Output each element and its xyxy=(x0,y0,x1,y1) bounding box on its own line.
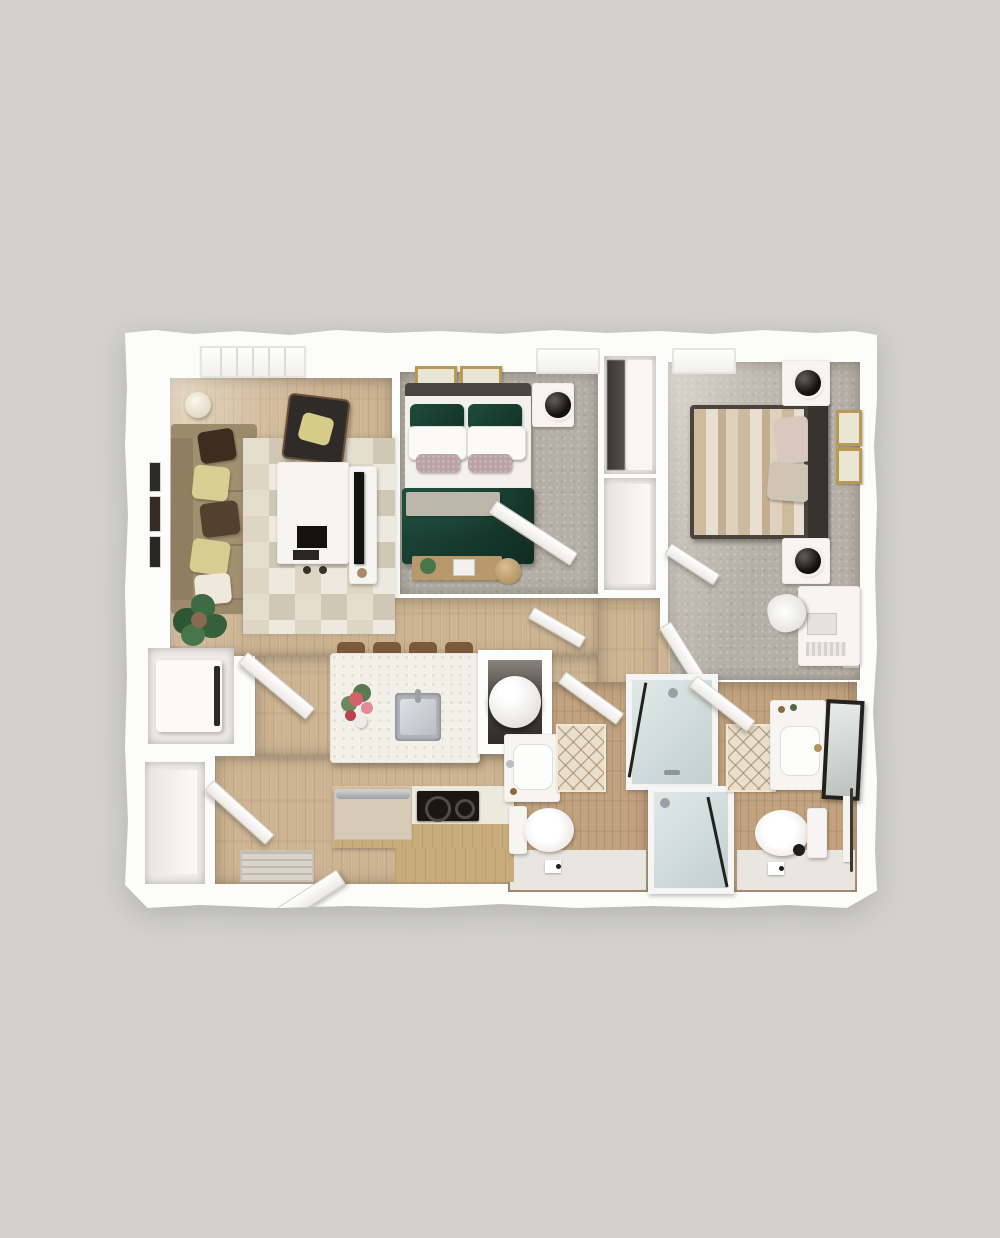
plant-pot xyxy=(191,612,207,628)
island-sink xyxy=(395,693,441,741)
flower-vase xyxy=(355,716,367,728)
bedroom-1-lamp xyxy=(545,392,571,418)
bathroom-2-shower xyxy=(648,786,734,894)
bedroom-2-pillow-beige xyxy=(766,461,811,503)
bench-book xyxy=(454,560,474,575)
coffee-table-book xyxy=(297,526,327,548)
bathroom-2-bottle-2 xyxy=(790,704,797,711)
bedroom-1-pillow-accent-2 xyxy=(468,454,512,472)
desk-laptop xyxy=(808,614,836,634)
bench-plant xyxy=(420,558,436,574)
burner-small xyxy=(455,799,475,819)
bedroom-2-art-2 xyxy=(836,448,862,484)
bathroom-1-toilet-bowl xyxy=(524,808,574,852)
bathroom-2-mirror xyxy=(821,699,864,801)
accent-chair-pillow xyxy=(297,411,335,446)
island-sink-basin xyxy=(400,699,436,735)
bathroom-2-sink xyxy=(780,726,820,776)
bathroom-2-towel-bar xyxy=(843,788,853,872)
bedroom-1-bed xyxy=(402,366,534,566)
cooktop xyxy=(417,791,479,821)
bathroom-2-flush-valve xyxy=(793,844,805,856)
island-faucet xyxy=(415,689,421,703)
flower-pink-2 xyxy=(361,702,373,714)
bathroom-1-tp-holder xyxy=(545,860,561,873)
bathroom-2-shelf xyxy=(770,680,848,700)
bathroom-1-mat xyxy=(556,724,606,792)
laundry-closet xyxy=(148,648,234,744)
bedroom-1-tray xyxy=(495,558,521,584)
shower-1-head xyxy=(668,688,678,698)
bathroom-2-vanity xyxy=(770,700,826,790)
bathroom-2-toilet-tank xyxy=(807,808,827,858)
bathroom-1-sink xyxy=(513,744,553,790)
shower-2-head xyxy=(660,798,670,808)
bathroom-2-mat xyxy=(726,724,776,792)
bathroom-1-faucet xyxy=(506,760,514,768)
washer-door-edge xyxy=(214,666,220,726)
floor-plan-paper-shadow xyxy=(125,330,877,908)
tv-console xyxy=(349,466,377,584)
wall-art-strip-2 xyxy=(150,497,160,531)
washer-dryer xyxy=(156,660,222,732)
bedroom-1-pillow-accent-1 xyxy=(416,454,460,472)
floor-plan-canvas xyxy=(0,0,1000,1238)
pillow-yellow-2 xyxy=(189,538,231,577)
tv-console-knob xyxy=(357,568,367,578)
closet-shelf-2 xyxy=(610,484,650,584)
towel-rod xyxy=(850,788,853,872)
floor-plant xyxy=(167,590,231,648)
bedroom-1-folded-blanket xyxy=(406,492,500,516)
bathroom-2-faucet xyxy=(814,744,822,752)
coffee-table-cup-2 xyxy=(319,566,327,574)
water-heater-tank xyxy=(489,676,541,728)
wall-art-strip-1 xyxy=(150,463,160,491)
shower-1-glass-frame xyxy=(628,682,648,777)
oven xyxy=(334,788,412,840)
island-flowers xyxy=(339,682,383,730)
bedroom-1-bench xyxy=(412,556,502,580)
bathroom-2-tp-holder xyxy=(768,862,784,875)
bedroom-2-bed xyxy=(690,395,840,555)
linen-closet xyxy=(145,762,205,884)
bathroom-1-vanity xyxy=(504,734,560,802)
bathroom-1-tile-apron xyxy=(510,850,646,890)
living-window-mullions xyxy=(220,348,286,376)
coffee-table-tablet xyxy=(293,550,319,560)
floor-lamp xyxy=(185,392,211,418)
bathroom-2-tile-apron xyxy=(737,850,855,890)
shower-2-glass-frame xyxy=(706,797,728,888)
pillow-brown xyxy=(199,500,241,538)
bathroom-1-soap xyxy=(510,788,517,795)
bedroom-1-window xyxy=(536,348,600,374)
kitchen-counter-lower-block xyxy=(395,848,514,882)
floor-plan-paper xyxy=(125,330,877,908)
bedroom-2-art-1 xyxy=(836,410,862,446)
closet-cubby-lower xyxy=(604,478,656,590)
pillow-yellow-1 xyxy=(191,464,230,502)
accent-chair xyxy=(281,392,351,465)
desk-keyboard xyxy=(806,642,846,656)
coffee-table-cup-1 xyxy=(303,566,311,574)
closet-cubby-upper xyxy=(604,356,656,474)
coffee-table xyxy=(277,462,349,564)
bedroom-2-lamp-bottom xyxy=(795,548,821,574)
shower-1-valve xyxy=(664,770,680,775)
wall-art-strip-3 xyxy=(150,537,160,567)
linen-shelf xyxy=(151,770,197,874)
oven-handle xyxy=(336,790,410,799)
tp-roll-1 xyxy=(556,864,561,869)
burner-large xyxy=(425,796,451,822)
bedroom-2-headboard xyxy=(808,395,828,547)
doormat xyxy=(240,850,314,882)
tp-roll-2 xyxy=(779,866,784,871)
bedroom-2-lamp-top xyxy=(795,370,821,396)
bedroom-2-pillow-blush xyxy=(773,415,812,465)
entry-door-handle xyxy=(259,921,269,931)
tv-screen xyxy=(354,472,364,564)
bathroom-2-bottle-1 xyxy=(778,706,785,713)
hanging-clothes xyxy=(607,360,625,470)
sofa-back xyxy=(171,438,195,600)
closet-shelf xyxy=(628,360,652,470)
bedroom-2-window xyxy=(672,348,736,374)
pillow-dark-brown xyxy=(197,427,238,464)
bedroom-2-desk xyxy=(798,586,860,666)
